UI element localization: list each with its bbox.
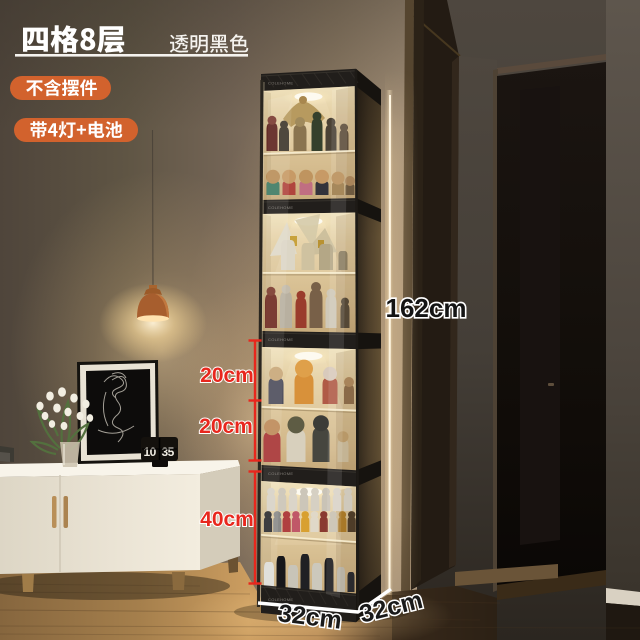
svg-text:162cm: 162cm <box>386 293 467 323</box>
svg-text:40cm: 40cm <box>200 508 254 531</box>
svg-text:35: 35 <box>162 445 175 459</box>
svg-text:10: 10 <box>144 445 157 459</box>
svg-text:20cm: 20cm <box>200 364 254 387</box>
svg-text:20cm: 20cm <box>199 415 253 438</box>
